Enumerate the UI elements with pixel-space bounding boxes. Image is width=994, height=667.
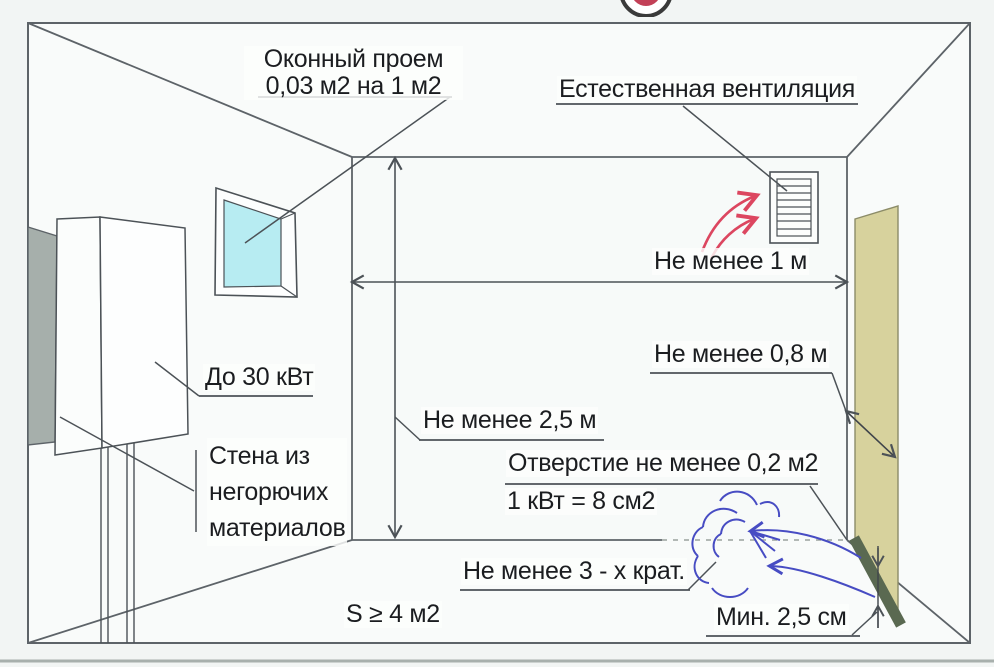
opening-area-label: Отверстие не менее 0,2 м2 [506, 450, 820, 477]
wall-panel [28, 227, 57, 445]
kw-ratio-label: 1 кВт = 8 см2 [505, 488, 657, 515]
wall-material-label-line1: Стена из [209, 438, 345, 474]
room-area-label: S ≥ 4 м2 [344, 601, 442, 628]
boiler [55, 217, 188, 455]
wall-material-label: Стена из негорючих материалов [207, 438, 347, 546]
min-distance-1m-label: Не менее 1 м [652, 248, 809, 275]
ventilation-diagram: Оконный проем 0,03 м2 на 1 м2 Естественн… [0, 0, 994, 667]
wall-material-label-line3: материалов [209, 510, 345, 546]
window-opening-label: Оконный проем 0,03 м2 на 1 м2 [244, 46, 463, 100]
min-height-25m-label: Не менее 2,5 м [421, 407, 598, 434]
door-gap-label: Мин. 2,5 см [714, 604, 849, 631]
wall-material-label-line2: негорючих [209, 474, 345, 510]
air-exchange-label: Не менее 3 - х крат. [461, 558, 687, 585]
window-opening-label-line1: Оконный проем [246, 46, 461, 73]
window-opening-label-line2: 0,03 м2 на 1 м2 [246, 73, 461, 100]
boiler-power-label: До 30 кВт [203, 364, 315, 391]
logo-mark [621, 0, 671, 16]
natural-ventilation-label: Естественная вентиляция [557, 76, 857, 103]
min-distance-08m-label: Не менее 0,8 м [652, 341, 829, 368]
